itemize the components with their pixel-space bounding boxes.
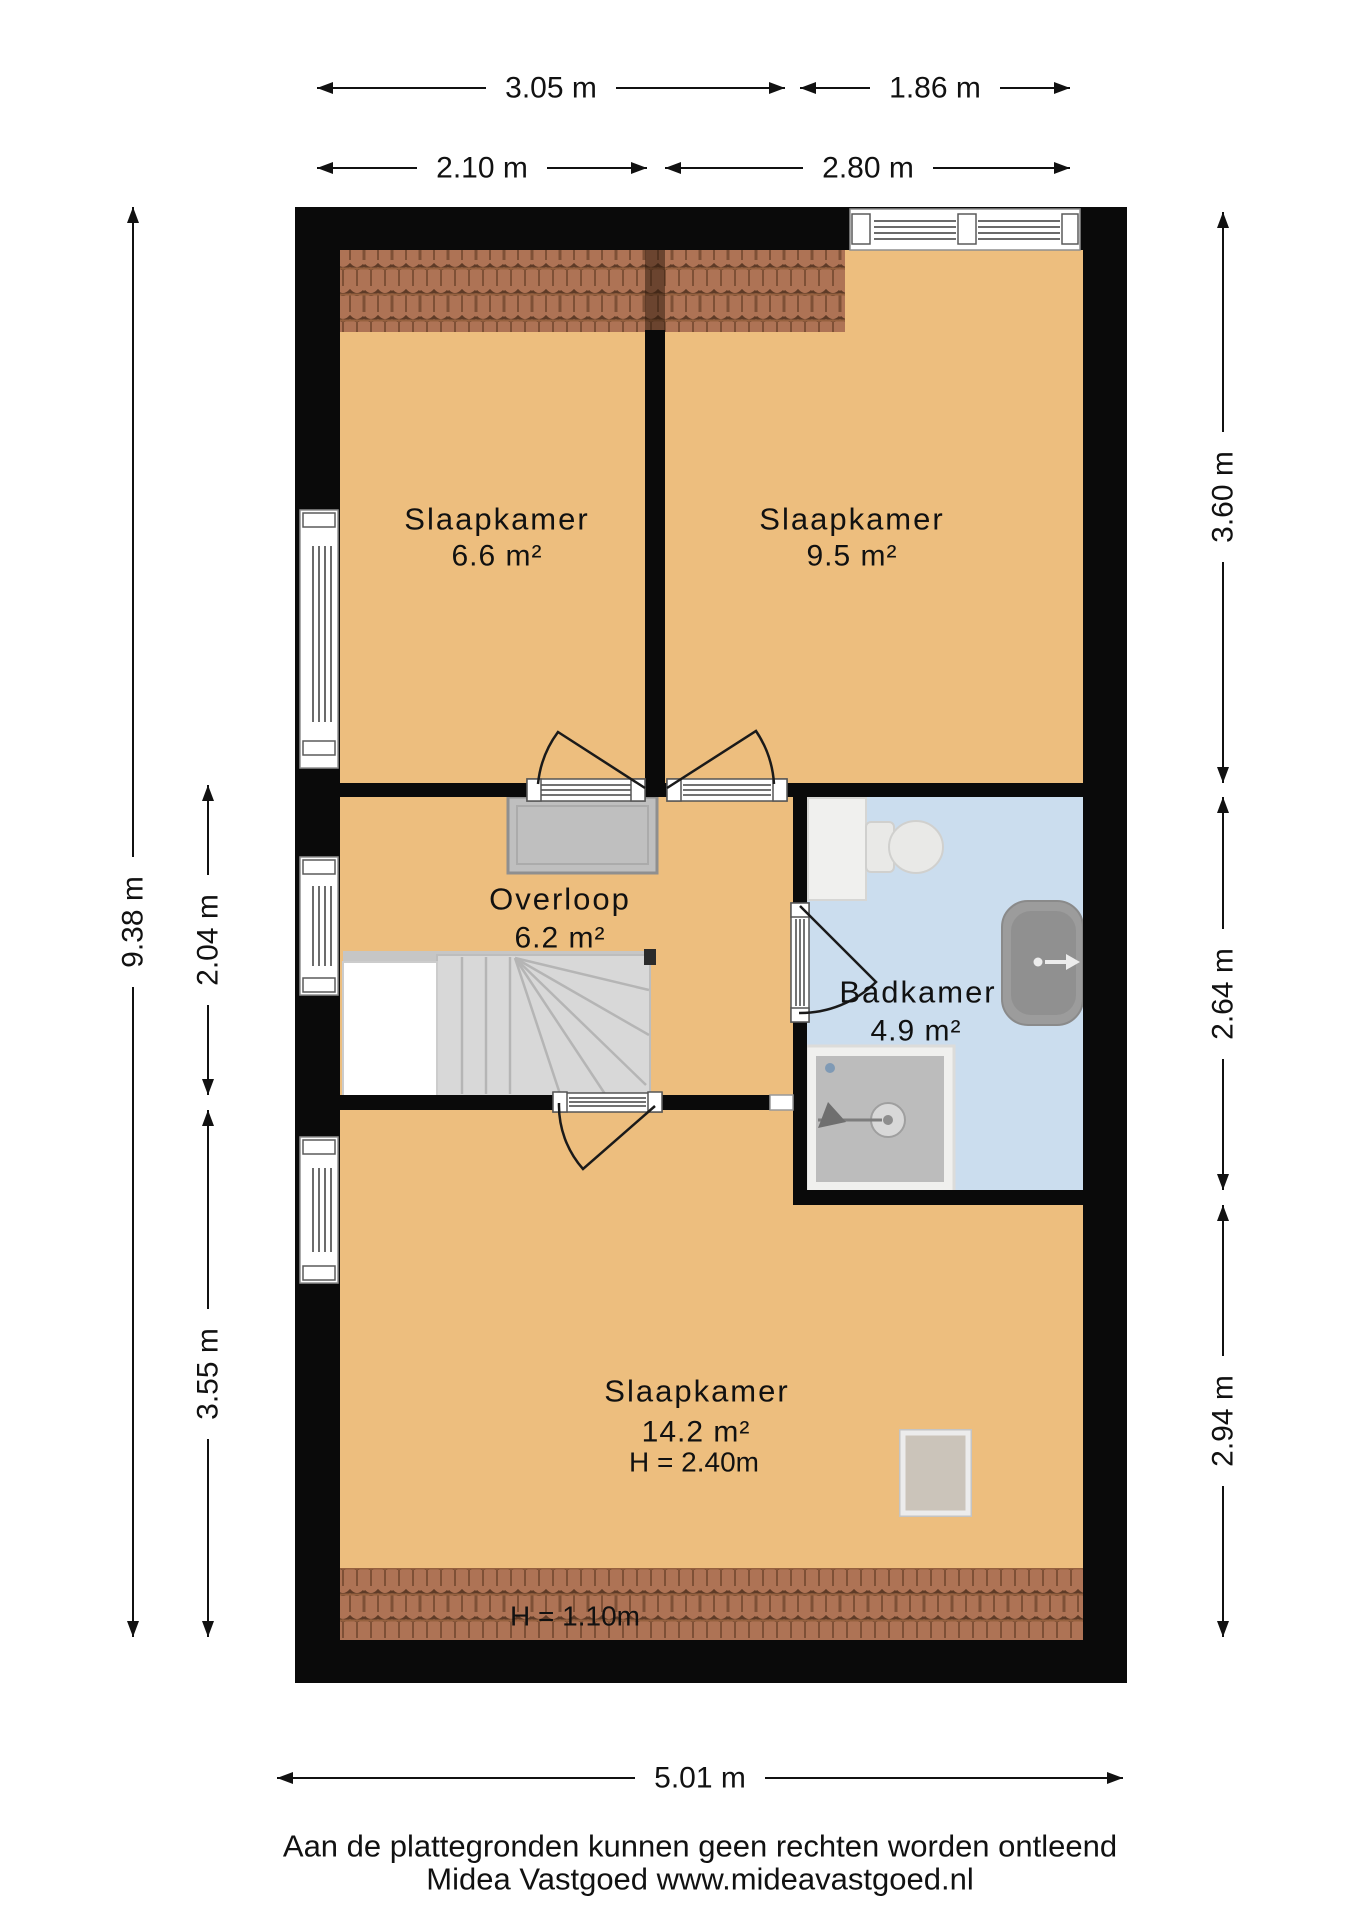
bedroom-top-left-name: Slaapkamer <box>404 502 589 537</box>
dim-label: 2.64 m <box>1207 948 1240 1040</box>
dim-right-middle: 2.64 m <box>1205 797 1241 1190</box>
footer: Aan de plattegronden kunnen geen rechten… <box>283 1829 1117 1897</box>
dim-right-top: 3.60 m <box>1205 212 1241 783</box>
wall-bathroom-south <box>793 1190 1083 1205</box>
bedroom-bottom-name: Slaapkamer <box>604 1374 789 1409</box>
window-west-lower <box>300 1137 338 1283</box>
roof-wall-shadow <box>645 250 665 332</box>
bedroom-bottom-area: 14.2 m² <box>642 1416 751 1449</box>
landing-cabinet <box>508 797 657 873</box>
wall-bedrooms-south-left <box>340 783 527 797</box>
dim-label: 3.05 m <box>505 72 597 105</box>
wall-between-bedrooms <box>645 330 665 783</box>
dim-right-bottom: 2.94 m <box>1205 1205 1241 1637</box>
floor-plan-canvas: H = 1.10m <box>0 0 1358 1920</box>
wall-bathroom-west-lower <box>793 1020 807 1190</box>
shower <box>806 1046 954 1192</box>
dim-left-total: 9.38 m <box>115 207 151 1637</box>
window-north <box>850 209 1080 250</box>
wall-bathroom-north <box>787 783 1083 797</box>
stairs-newel-post <box>644 949 656 965</box>
wall-landing-south-left <box>340 1095 555 1110</box>
roof-height-note: H = 1.10m <box>510 1601 640 1632</box>
floor-plan-page: H = 1.10m <box>0 0 1358 1920</box>
dim-bottom-total: 5.01 m <box>277 1760 1123 1796</box>
window-west-upper <box>300 510 338 768</box>
toilet-bowl <box>889 821 943 873</box>
wall-bathroom-west-upper <box>793 797 807 905</box>
dim-top-inner-right: 2.80 m <box>665 150 1070 186</box>
dim-label: 5.01 m <box>654 1762 746 1795</box>
dim-label: 2.94 m <box>1207 1375 1240 1467</box>
footer-disclaimer: Aan de plattegronden kunnen geen rechten… <box>283 1829 1117 1864</box>
roof-strip-top <box>340 250 845 332</box>
bedroom-top-right-area: 9.5 m² <box>806 540 897 573</box>
roof-strip-bottom <box>340 1568 1083 1640</box>
landing-area: 6.2 m² <box>514 922 605 955</box>
dim-left-bottom: 3.55 m <box>190 1110 226 1637</box>
wall-bedrooms-south-mid <box>645 783 667 797</box>
stairs-treads <box>437 955 650 1096</box>
footer-company: Midea Vastgoed www.mideavastgoed.nl <box>426 1862 973 1897</box>
dim-top-outer-left: 3.05 m <box>317 70 785 106</box>
wall-south <box>295 1640 1127 1683</box>
bedroom-top-left-area: 6.6 m² <box>451 540 542 573</box>
roof-window <box>900 1430 971 1516</box>
bathroom-name: Badkamer <box>839 975 996 1010</box>
dim-label: 2.04 m <box>192 894 225 986</box>
bathroom-area: 4.9 m² <box>870 1015 961 1048</box>
landing-name: Overloop <box>489 882 631 917</box>
washbasin-drain <box>1034 958 1043 967</box>
wall-end-cap <box>770 1095 793 1110</box>
shower-drain-center <box>883 1115 893 1125</box>
dim-label: 3.60 m <box>1207 451 1240 543</box>
dim-top-inner-left: 2.10 m <box>317 150 647 186</box>
dim-label: 3.55 m <box>192 1328 225 1420</box>
dim-label: 9.38 m <box>117 876 150 968</box>
toilet-cistern-cabinet <box>808 798 866 900</box>
window-west-middle <box>300 857 338 995</box>
dim-label: 2.10 m <box>436 152 528 185</box>
dim-left-landing: 2.04 m <box>190 785 226 1095</box>
bedroom-bottom-height: H = 2.40m <box>629 1447 759 1478</box>
bedroom-top-right-name: Slaapkamer <box>759 502 944 537</box>
dim-label: 2.80 m <box>822 152 914 185</box>
staircase <box>343 949 656 1096</box>
washbasin <box>1002 901 1083 1025</box>
wall-landing-south-right <box>660 1095 770 1110</box>
dim-top-outer-right: 1.86 m <box>800 70 1070 106</box>
wall-east <box>1083 207 1127 1683</box>
dim-label: 1.86 m <box>889 72 981 105</box>
stairwell-void <box>343 962 437 1096</box>
shower-control-dot <box>825 1063 835 1073</box>
